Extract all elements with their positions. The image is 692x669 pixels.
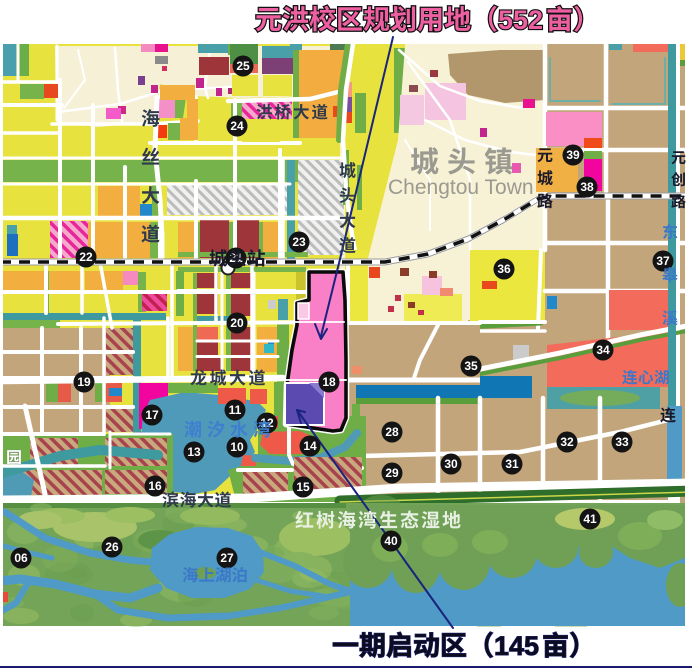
svg-text:552: 552 bbox=[498, 5, 543, 35]
svg-text:06: 06 bbox=[14, 551, 28, 565]
svg-text:38: 38 bbox=[580, 180, 594, 194]
svg-text:13: 13 bbox=[187, 445, 201, 459]
svg-text:26: 26 bbox=[105, 540, 119, 554]
svg-text:11: 11 bbox=[229, 403, 242, 417]
svg-text:41: 41 bbox=[583, 512, 597, 526]
svg-text:16: 16 bbox=[148, 479, 162, 493]
svg-text:14: 14 bbox=[303, 439, 317, 453]
svg-text:17: 17 bbox=[145, 408, 159, 422]
svg-text:37: 37 bbox=[656, 254, 670, 268]
svg-text:22: 22 bbox=[79, 250, 93, 264]
svg-text:32: 32 bbox=[560, 435, 574, 449]
svg-text:28: 28 bbox=[385, 425, 399, 439]
svg-text:40: 40 bbox=[384, 534, 398, 548]
svg-text:23: 23 bbox=[292, 235, 306, 249]
svg-text:27: 27 bbox=[220, 551, 234, 565]
svg-text:20: 20 bbox=[230, 316, 244, 330]
svg-text:39: 39 bbox=[566, 148, 580, 162]
svg-text:18: 18 bbox=[322, 375, 336, 389]
svg-text:36: 36 bbox=[497, 262, 511, 276]
svg-text:30: 30 bbox=[444, 457, 458, 471]
svg-text:31: 31 bbox=[505, 457, 519, 471]
svg-text:10: 10 bbox=[230, 440, 244, 454]
svg-text:29: 29 bbox=[385, 466, 399, 480]
svg-text:25: 25 bbox=[236, 59, 250, 73]
svg-text:34: 34 bbox=[596, 343, 610, 357]
svg-text:33: 33 bbox=[615, 435, 629, 449]
svg-text:15: 15 bbox=[296, 480, 310, 494]
svg-text:19: 19 bbox=[77, 375, 91, 389]
svg-text:Chengtou Town: Chengtou Town bbox=[388, 176, 534, 199]
svg-text:145: 145 bbox=[494, 631, 539, 661]
svg-text:24: 24 bbox=[230, 119, 244, 133]
svg-text:35: 35 bbox=[464, 359, 478, 373]
